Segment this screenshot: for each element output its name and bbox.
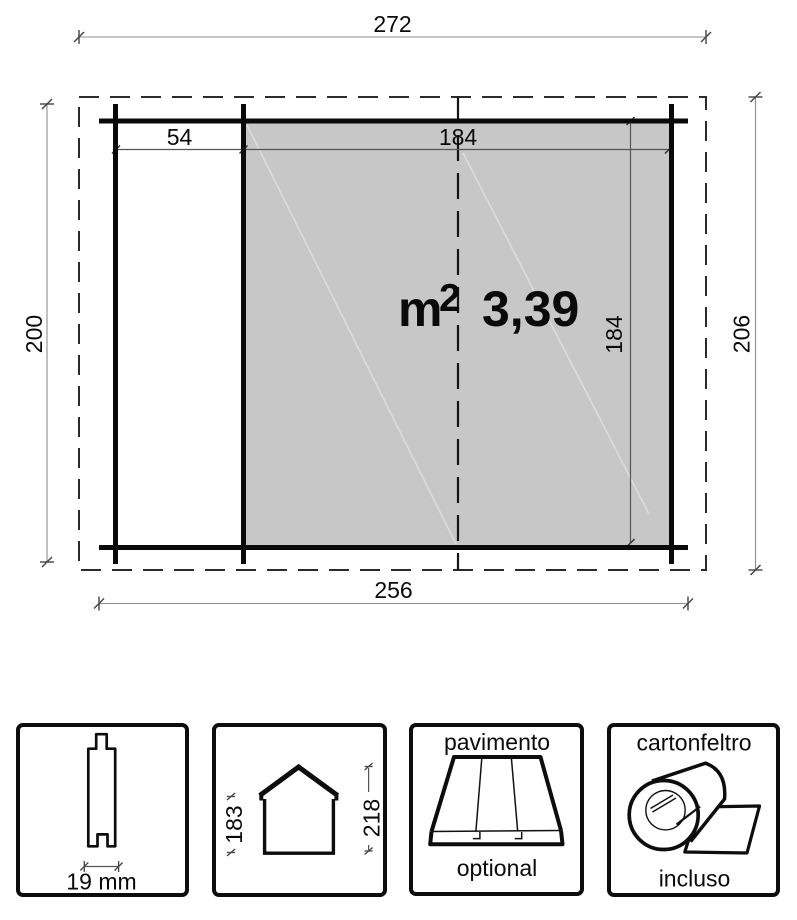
- svg-text:272: 272: [373, 11, 411, 37]
- svg-text:184: 184: [439, 124, 478, 150]
- svg-text:256: 256: [374, 577, 412, 603]
- svg-text:206: 206: [729, 315, 755, 353]
- svg-text:19 mm: 19 mm: [66, 869, 136, 895]
- svg-text:200: 200: [21, 315, 47, 353]
- svg-text:optional: optional: [457, 855, 538, 881]
- svg-text:218: 218: [359, 799, 385, 837]
- svg-text:cartonfeltro: cartonfeltro: [636, 730, 751, 756]
- svg-text:184: 184: [601, 315, 627, 354]
- svg-text:incluso: incluso: [659, 866, 731, 892]
- svg-text:183: 183: [221, 805, 247, 843]
- svg-text:m: m: [398, 281, 442, 337]
- svg-text:2: 2: [439, 277, 461, 320]
- svg-text:pavimento: pavimento: [444, 729, 550, 755]
- svg-text:3,39: 3,39: [482, 281, 579, 337]
- svg-text:54: 54: [167, 124, 193, 150]
